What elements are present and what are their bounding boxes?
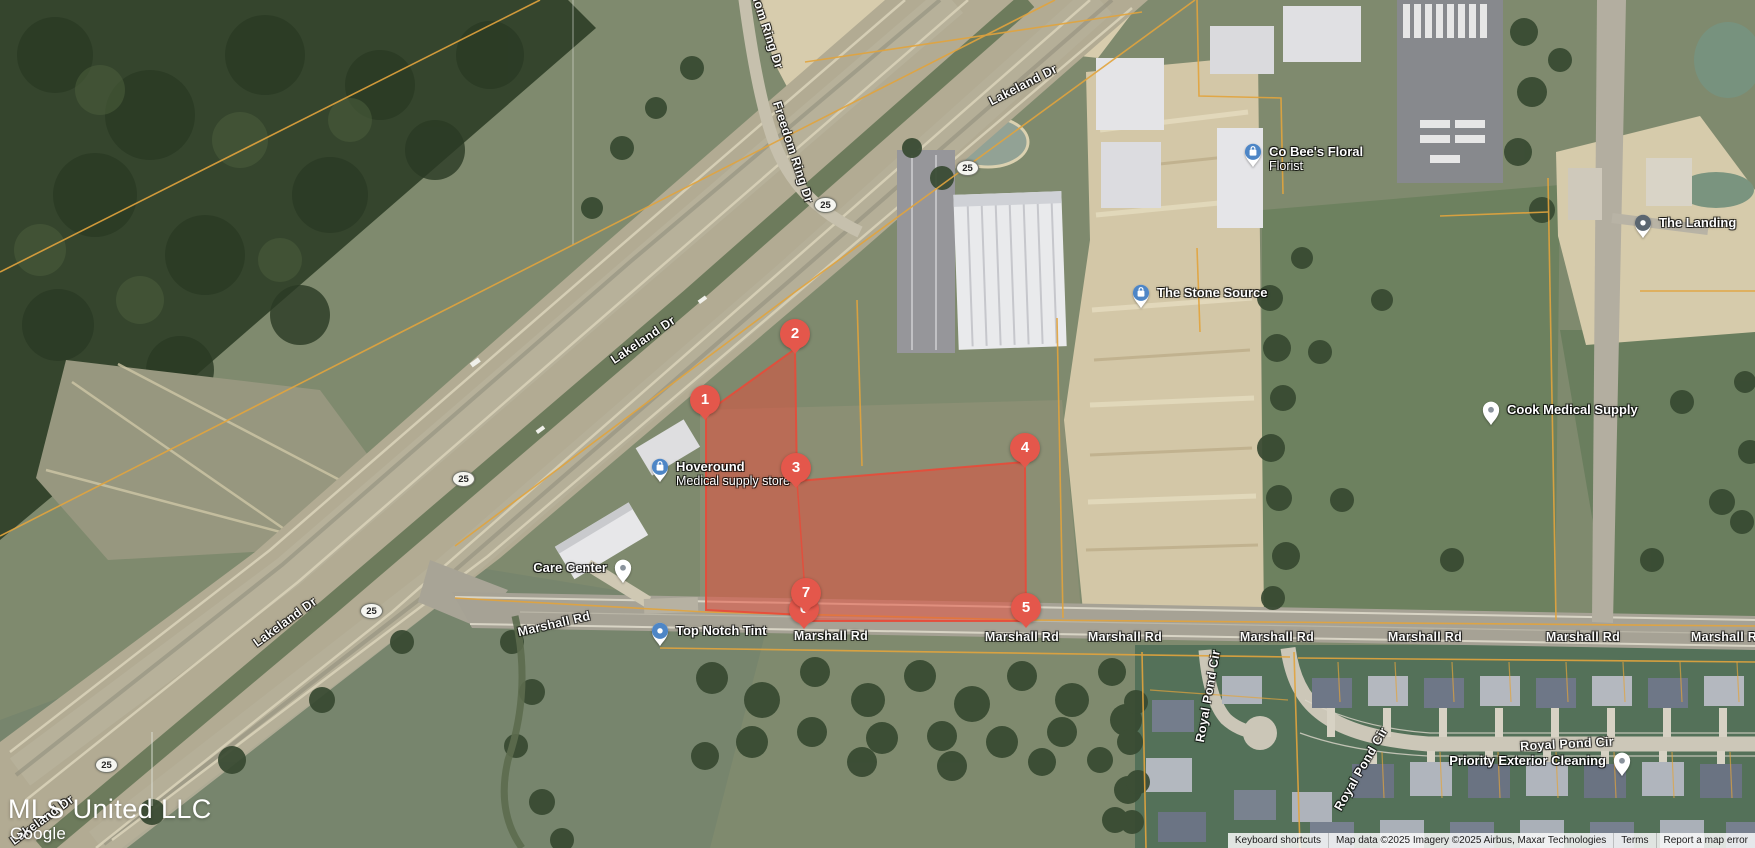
poi-label: Top Notch Tint bbox=[676, 623, 767, 638]
road-label-freedom-ring-dr: Freedom Ring Dr bbox=[740, 0, 786, 71]
poi-name: Hoveround bbox=[676, 459, 790, 474]
poi-label: Priority Exterior Cleaning bbox=[1449, 753, 1606, 768]
place-pin-icon bbox=[1611, 750, 1633, 782]
satellite-map[interactable]: Lakeland DrLakeland DrLakeland DrLakelan… bbox=[0, 0, 1755, 848]
road-label-marshall-rd: Marshall Rd bbox=[1088, 630, 1162, 644]
poi-label: Care Center bbox=[533, 560, 607, 575]
attribution-bar: Keyboard shortcuts Map data ©2025 Imager… bbox=[1228, 833, 1755, 848]
parcel-marker-2[interactable]: 2 bbox=[780, 319, 810, 349]
road-label-marshall-rd: Marshall Rd bbox=[794, 629, 868, 643]
highway-shield-25: 25 bbox=[360, 603, 383, 619]
poi-name: The Stone Source bbox=[1157, 285, 1268, 300]
terms-link[interactable]: Terms bbox=[1613, 833, 1655, 848]
road-label-lakeland-dr: Lakeland Dr bbox=[608, 313, 678, 366]
poi-category: Medical supply store bbox=[676, 474, 790, 489]
poi-label: Co Bee's FloralFlorist bbox=[1269, 144, 1363, 174]
poi-category: Florist bbox=[1269, 159, 1363, 174]
road-label-marshall-rd: Marshall Rd bbox=[1240, 630, 1314, 644]
road-label-marshall-rd: Marshall Rd bbox=[516, 609, 591, 639]
parcel-marker-7[interactable]: 7 bbox=[791, 578, 821, 608]
place-pin-icon bbox=[1480, 399, 1502, 431]
parcel-marker-5[interactable]: 5 bbox=[1011, 593, 1041, 623]
poi-care-center[interactable]: Care Center bbox=[533, 557, 634, 589]
road-label-marshall-rd: Marshall Rd bbox=[985, 630, 1059, 644]
parcel-marker-4[interactable]: 4 bbox=[1010, 433, 1040, 463]
poi-the-stone-source[interactable]: The Stone Source bbox=[1130, 282, 1268, 314]
place-pin-icon bbox=[612, 557, 634, 589]
parcel-marker-3[interactable]: 3 bbox=[781, 453, 811, 483]
poi-name: Co Bee's Floral bbox=[1269, 144, 1363, 159]
poi-cook-medical-supply[interactable]: Cook Medical Supply bbox=[1480, 399, 1638, 431]
dot-blue-pin-icon bbox=[649, 620, 671, 652]
map-data-attribution: Map data ©2025 Imagery ©2025 Airbus, Max… bbox=[1328, 833, 1613, 848]
poi-priority-exterior-cleaning[interactable]: Priority Exterior Cleaning bbox=[1449, 750, 1633, 782]
poi-label: Cook Medical Supply bbox=[1507, 402, 1638, 417]
road-label-marshall-rd: Marshall Rd bbox=[1691, 630, 1755, 644]
road-label-marshall-rd: Marshall Rd bbox=[1388, 630, 1462, 644]
shopping-bag-pin-icon bbox=[649, 456, 671, 488]
report-map-error-link[interactable]: Report a map error bbox=[1656, 833, 1755, 848]
poi-top-notch-tint[interactable]: Top Notch Tint bbox=[649, 620, 767, 652]
parcel-marker-1[interactable]: 1 bbox=[690, 385, 720, 415]
poi-co-bees-floral[interactable]: Co Bee's FloralFlorist bbox=[1242, 141, 1363, 174]
road-label-lakeland-dr: Lakeland Dr bbox=[986, 62, 1059, 108]
poi-name: Top Notch Tint bbox=[676, 623, 767, 638]
road-label-freedom-ring-dr: Freedom Ring Dr bbox=[770, 99, 816, 204]
road-label-marshall-rd: Marshall Rd bbox=[1546, 630, 1620, 644]
poi-name: Priority Exterior Cleaning bbox=[1449, 753, 1606, 768]
watermark: MLS United LLC bbox=[8, 794, 212, 825]
poi-name: Care Center bbox=[533, 560, 607, 575]
shopping-bag-pin-icon bbox=[1242, 141, 1264, 173]
poi-label: The Stone Source bbox=[1157, 285, 1268, 300]
poi-name: Cook Medical Supply bbox=[1507, 402, 1638, 417]
highway-shield-25: 25 bbox=[956, 160, 979, 176]
poi-label: HoveroundMedical supply store bbox=[676, 459, 790, 489]
keyboard-shortcuts-button[interactable]: Keyboard shortcuts bbox=[1228, 833, 1328, 848]
map-overlays: Lakeland DrLakeland DrLakeland DrLakelan… bbox=[0, 0, 1755, 848]
place-dark-pin-icon bbox=[1632, 212, 1654, 244]
poi-hoveround[interactable]: HoveroundMedical supply store bbox=[649, 456, 790, 489]
road-label-royal-pond-cir: Royal Pond Cir bbox=[1193, 649, 1223, 744]
shopping-bag-pin-icon bbox=[1130, 282, 1152, 314]
highway-shield-25: 25 bbox=[814, 197, 837, 213]
highway-shield-25: 25 bbox=[95, 757, 118, 773]
poi-the-landing[interactable]: The Landing bbox=[1632, 212, 1736, 244]
poi-name: The Landing bbox=[1659, 215, 1736, 230]
highway-shield-25: 25 bbox=[452, 471, 475, 487]
road-label-royal-pond-cir: Royal Pond Cir bbox=[1331, 725, 1390, 813]
poi-label: The Landing bbox=[1659, 215, 1736, 230]
google-logo[interactable]: Google bbox=[10, 824, 66, 844]
road-label-lakeland-dr: Lakeland Dr bbox=[251, 594, 320, 649]
